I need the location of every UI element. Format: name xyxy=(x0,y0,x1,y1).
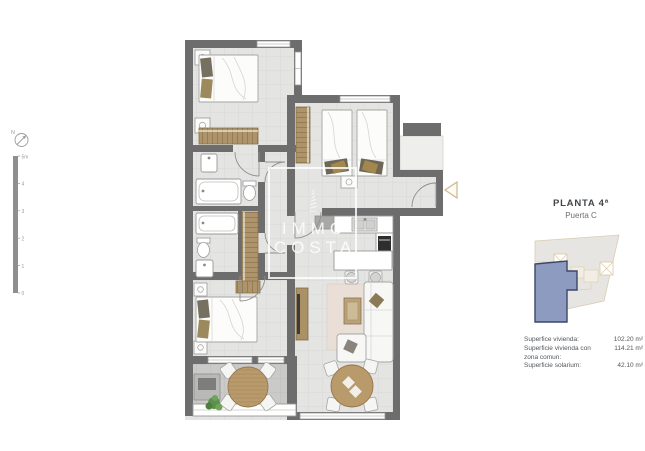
measurement-row: zona comun: xyxy=(524,354,643,363)
terrace-dining-set xyxy=(219,361,276,411)
entrance-marker-icon xyxy=(445,182,457,198)
terrace-sideboard-top xyxy=(198,378,216,390)
pillow xyxy=(197,320,210,339)
scale-label: 3 xyxy=(22,209,25,215)
bedroom-1 xyxy=(195,50,258,144)
compass: N xyxy=(11,130,28,147)
floorplan-page: { "plan": { "watermark": {"line1": "IMMO… xyxy=(0,0,645,451)
nightstand xyxy=(194,341,207,354)
wall xyxy=(287,245,295,362)
sofa xyxy=(364,282,393,362)
plan-subtitle: Puerta C xyxy=(512,211,645,220)
nightstand xyxy=(194,283,207,296)
pillow xyxy=(200,79,213,99)
wall xyxy=(238,211,242,280)
scale-label: 5m xyxy=(22,155,29,161)
scale-label: 2 xyxy=(22,237,25,243)
scale-label: 1 xyxy=(22,264,25,270)
measurement-row: Superficie solarium: 42.10 m² xyxy=(524,362,643,371)
measurement-value: 42.10 m² xyxy=(617,362,643,371)
wall xyxy=(393,170,443,177)
plan-title: PLANTA 4ª xyxy=(512,198,645,209)
shower-faucet xyxy=(202,222,205,225)
scale-label: 4 xyxy=(22,182,25,188)
corridor-closet xyxy=(242,212,258,285)
coffee-table-top xyxy=(347,302,358,320)
wall xyxy=(403,123,441,136)
tv xyxy=(297,294,300,334)
scale-bar: 5m 4 3 2 1 0 xyxy=(13,155,28,298)
nightstand xyxy=(341,176,357,188)
sink-faucet xyxy=(208,157,211,160)
terrace-table-slats xyxy=(229,368,267,406)
entry-floor xyxy=(400,177,436,208)
measurements: Superfice vivienda: 102.20 m² Superficie… xyxy=(524,336,643,371)
outside-mask xyxy=(302,39,401,95)
measurement-row: Superfice vivienda: 102.20 m² xyxy=(524,336,643,345)
sink xyxy=(196,260,213,277)
wall xyxy=(393,103,400,170)
key-plan xyxy=(525,229,637,329)
wall xyxy=(185,206,258,211)
sink-basin xyxy=(354,220,364,229)
sink-faucet xyxy=(364,218,367,221)
toilet xyxy=(197,238,210,258)
wall xyxy=(258,253,265,280)
measurement-label: zona comun: xyxy=(524,354,643,363)
common-area-floor xyxy=(400,136,443,170)
wall xyxy=(322,208,400,216)
scale-label: 0 xyxy=(22,291,25,297)
measurement-value: 102.20 m² xyxy=(614,336,643,345)
wall xyxy=(185,145,233,152)
dining-table xyxy=(331,365,373,407)
bathtub-faucet xyxy=(202,190,205,193)
legend-panel: PLANTA 4ª Puerta C Superfice vivienda: 1… xyxy=(512,198,645,371)
pillow xyxy=(200,57,213,77)
kitchen-island xyxy=(334,251,392,270)
sink-faucet xyxy=(203,264,206,267)
measurement-row: Superficie vivienda con 114.21 m² xyxy=(524,345,643,354)
compass-north-label: N xyxy=(11,130,15,136)
bar-stool xyxy=(345,271,358,284)
scale-ticks xyxy=(18,156,20,293)
scale-bar-rule xyxy=(13,156,18,293)
measurement-label: Superficie solarium: xyxy=(524,362,617,371)
wall xyxy=(393,216,400,420)
measurement-label: Superficie vivienda con xyxy=(524,345,614,354)
measurement-value: 114.21 m² xyxy=(614,345,643,354)
wall xyxy=(287,208,295,216)
fridge xyxy=(315,216,334,229)
measurement-label: Superfice vivienda: xyxy=(524,336,614,345)
wall xyxy=(258,182,265,233)
pillow xyxy=(197,299,210,318)
toilet xyxy=(243,181,256,201)
sink-basin xyxy=(366,220,375,229)
dining-set xyxy=(323,359,378,413)
